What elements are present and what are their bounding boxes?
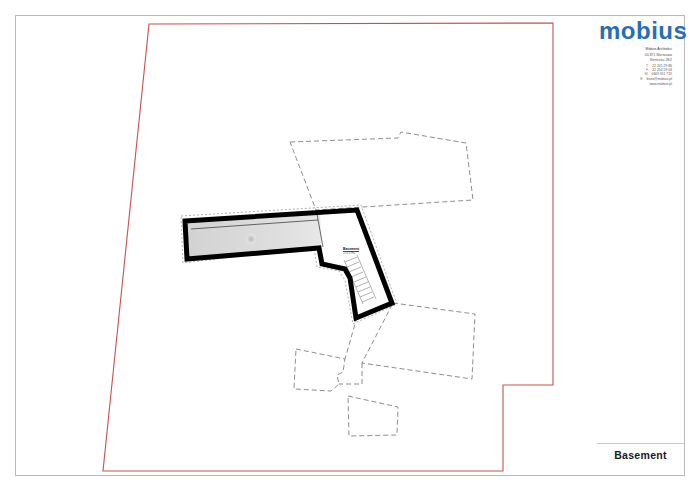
lower-building-outline: [348, 396, 398, 436]
upper-building-outline: [290, 132, 473, 210]
contact-website: www.mobius.pl: [560, 82, 672, 86]
contact-address-line2: Siennicka 28/2: [560, 58, 672, 62]
left-terrace-outline: [294, 349, 345, 391]
mobius-logo: mobius: [599, 19, 687, 43]
room-label: Basement 175.0 m2: [343, 247, 367, 256]
contact-company: Mobius Architekci: [560, 47, 672, 51]
column-dot: [246, 234, 256, 244]
contact-block: Mobius Architekci 00-871 Warszawa Sienni…: [560, 47, 672, 86]
right-building-outline: [362, 303, 475, 379]
contact-email-row: E biuro@mobius.pl: [560, 77, 672, 81]
connector-outline: [339, 363, 362, 384]
title-block: Basement: [597, 443, 684, 461]
room-label-area: 175.0 m2: [343, 252, 367, 256]
drawing-sheet: mobius Mobius Architekci 00-871 Warszawa…: [0, 0, 700, 495]
sheet-title: Basement: [597, 449, 684, 461]
tip-link-line: [345, 317, 357, 359]
